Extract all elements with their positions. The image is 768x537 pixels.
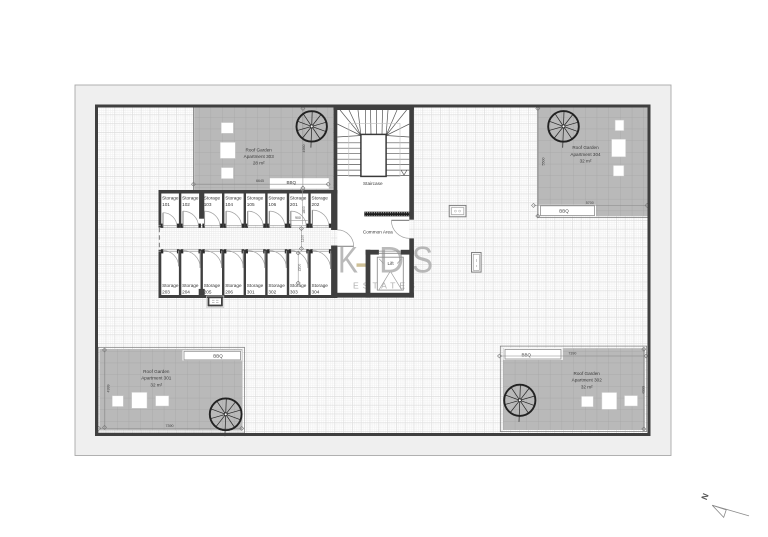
svg-text:32 m²: 32 m²: [581, 384, 593, 389]
svg-text:Storage: Storage: [225, 283, 242, 288]
svg-text:205: 205: [204, 290, 212, 295]
svg-text:202: 202: [312, 202, 320, 207]
svg-text:BBQ: BBQ: [213, 354, 223, 359]
svg-text:Storage: Storage: [268, 196, 285, 201]
svg-text:2200: 2200: [297, 264, 301, 272]
svg-text:Storage: Storage: [247, 283, 264, 288]
svg-text:Storage: Storage: [225, 196, 242, 201]
svg-text:BBQ: BBQ: [559, 208, 569, 213]
svg-text:7390: 7390: [568, 352, 576, 356]
svg-text:BBQ: BBQ: [522, 352, 532, 357]
svg-text:Storage: Storage: [247, 196, 264, 201]
svg-text:900: 900: [295, 216, 301, 220]
svg-text:BBQ: BBQ: [287, 180, 297, 185]
svg-text:Storage: Storage: [268, 283, 285, 288]
svg-text:Storage: Storage: [204, 283, 221, 288]
svg-text:Storage: Storage: [204, 196, 221, 201]
svg-text:ESTATES: ESTATES: [353, 280, 419, 290]
svg-text:4999: 4999: [107, 385, 111, 393]
svg-text:4950: 4950: [302, 145, 306, 153]
svg-text:102: 102: [182, 202, 190, 207]
svg-text:Roof Garden: Roof Garden: [574, 371, 601, 376]
svg-text:Roof Garden: Roof Garden: [143, 369, 170, 374]
svg-text:101: 101: [162, 202, 170, 207]
svg-text:Storage: Storage: [290, 196, 307, 201]
svg-text:7390: 7390: [166, 424, 174, 428]
svg-text:Roof Garden: Roof Garden: [246, 147, 273, 152]
svg-text:S: S: [412, 240, 433, 281]
svg-text:5500: 5500: [541, 158, 545, 166]
svg-text:304: 304: [312, 290, 320, 295]
svg-text:Common Area: Common Area: [363, 229, 393, 234]
svg-text:302: 302: [268, 290, 276, 295]
svg-text:Storage: Storage: [162, 283, 179, 288]
svg-text:Storage: Storage: [312, 283, 329, 288]
svg-text:28 m²: 28 m²: [253, 161, 265, 166]
svg-text:Storage: Storage: [162, 196, 179, 201]
svg-text:5700: 5700: [586, 201, 594, 205]
svg-text:201: 201: [290, 202, 298, 207]
svg-text:32 m²: 32 m²: [580, 159, 592, 164]
svg-text:1100: 1100: [301, 235, 305, 242]
svg-text:Apartment 301: Apartment 301: [141, 376, 172, 381]
svg-text:Apartment 302: Apartment 302: [572, 378, 603, 383]
svg-text:Storage: Storage: [312, 196, 329, 201]
svg-text:Staircase: Staircase: [363, 181, 383, 186]
svg-text:103: 103: [204, 202, 212, 207]
svg-text:6645: 6645: [256, 179, 264, 183]
svg-text:K: K: [338, 240, 358, 281]
svg-text:Apartment 303: Apartment 303: [244, 154, 275, 159]
svg-text:206: 206: [225, 290, 233, 295]
svg-text:Lift: Lift: [388, 261, 395, 266]
svg-text:105: 105: [247, 202, 255, 207]
svg-text:Apartment 304: Apartment 304: [570, 152, 601, 157]
svg-text:32 m²: 32 m²: [150, 382, 162, 387]
svg-text:203: 203: [162, 290, 170, 295]
svg-text:106: 106: [268, 202, 276, 207]
svg-text:Roof Garden: Roof Garden: [572, 145, 599, 150]
svg-text:204: 204: [182, 290, 190, 295]
svg-text:Storage: Storage: [182, 196, 199, 201]
svg-text:301: 301: [247, 290, 255, 295]
svg-text:1800: 1800: [302, 206, 306, 214]
svg-text:4999: 4999: [642, 386, 646, 394]
svg-text:104: 104: [225, 202, 233, 207]
svg-text:303: 303: [290, 290, 298, 295]
svg-text:Storage: Storage: [182, 283, 199, 288]
